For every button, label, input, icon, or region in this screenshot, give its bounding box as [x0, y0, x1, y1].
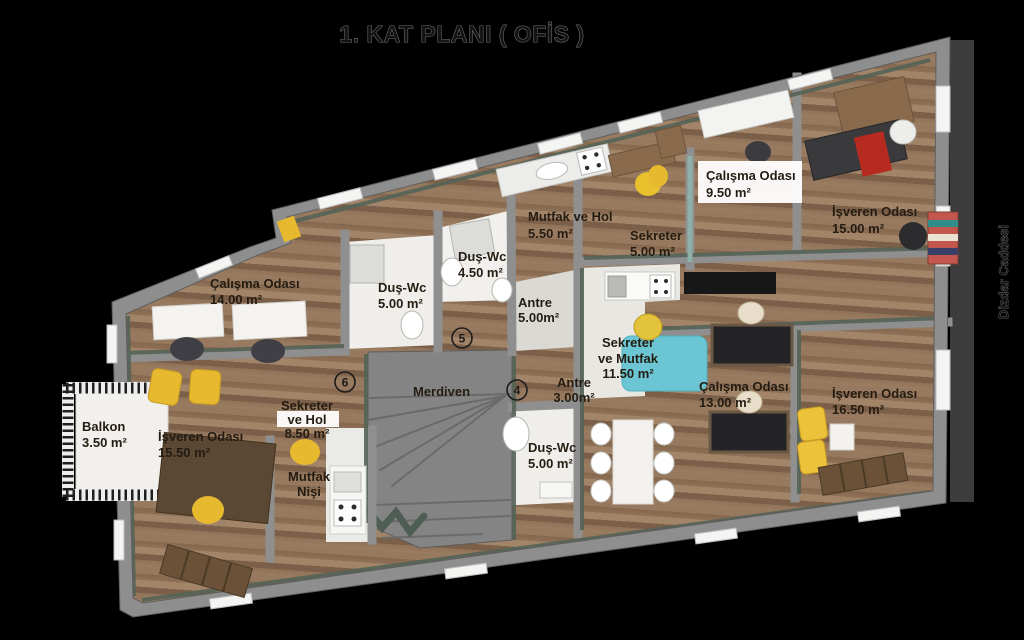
svg-text:Duş-Wc: Duş-Wc — [528, 440, 576, 455]
desk — [710, 412, 788, 452]
sink — [334, 472, 361, 492]
floor-plan-canvas: Çalışma Odası 9.50 m² İşveren Odası 15.0… — [0, 0, 1024, 640]
bath-counter — [540, 482, 572, 498]
marker-5: 5 — [452, 328, 472, 348]
room-label-balkon: Balkon 3.50 m² — [82, 419, 127, 450]
marker-6: 6 — [335, 372, 355, 392]
svg-text:Balkon: Balkon — [82, 419, 125, 434]
svg-text:ve Mutfak: ve Mutfak — [598, 351, 659, 366]
office-chair — [170, 337, 204, 361]
room-label-merdiven: Merdiven — [413, 384, 470, 399]
svg-text:3.50 m²: 3.50 m² — [82, 435, 127, 450]
svg-text:5.00 m²: 5.00 m² — [630, 244, 675, 259]
room-label-isveren-1650: İşveren Odası 16.50 m² — [832, 386, 917, 417]
svg-text:İşveren Odası: İşveren Odası — [832, 204, 917, 219]
office-chair — [251, 339, 285, 363]
svg-text:Sekreter: Sekreter — [630, 228, 682, 243]
toilet — [401, 311, 423, 339]
striped-armchair — [928, 212, 958, 264]
svg-text:4.50 m²: 4.50 m² — [458, 265, 503, 280]
chair — [591, 452, 611, 474]
chair — [654, 480, 674, 502]
yellow-chair — [648, 165, 668, 187]
svg-text:Çalışma Odası: Çalışma Odası — [706, 168, 796, 183]
yellow-chair — [797, 406, 828, 441]
svg-text:Sekreter: Sekreter — [602, 335, 654, 350]
svg-text:11.50 m²: 11.50 m² — [602, 366, 654, 381]
svg-text:8.50 m²: 8.50 m² — [285, 426, 330, 441]
svg-text:Mutfak: Mutfak — [288, 469, 331, 484]
yellow-chair — [147, 368, 182, 407]
room-label-mutfak-ve-hol: Mutfak ve Hol 5.50 m² — [528, 209, 613, 241]
room-label-sekreter-ve-mutfak: Sekreter ve Mutfak 11.50 m² — [598, 335, 659, 381]
office-chair — [745, 141, 771, 163]
room-label-sekreter-ve-hol: Sekreter ve Hol 8.50 m² — [281, 398, 333, 441]
svg-text:6: 6 — [342, 376, 349, 390]
sink — [608, 276, 626, 297]
yellow-chair — [189, 369, 221, 405]
svg-text:Antre: Antre — [518, 295, 552, 310]
sink — [503, 417, 529, 451]
street-label: Dizdar Caddesi — [996, 225, 1011, 319]
svg-text:14.00 m²: 14.00 m² — [210, 292, 263, 307]
svg-text:İşveren Odası: İşveren Odası — [158, 429, 243, 444]
sidewalk-strip — [950, 40, 974, 502]
cabinet — [655, 125, 687, 158]
svg-text:Sekreter: Sekreter — [281, 398, 333, 413]
svg-text:15.50 m²: 15.50 m² — [158, 445, 211, 460]
stove — [334, 500, 361, 526]
svg-text:15.00 m²: 15.00 m² — [832, 221, 885, 236]
room-label-duswc-450: Duş-Wc 4.50 m² — [458, 249, 506, 280]
svg-text:İşveren Odası: İşveren Odası — [832, 386, 917, 401]
svg-text:13.00 m²: 13.00 m² — [699, 395, 752, 410]
svg-text:Çalışma Odası: Çalışma Odası — [210, 276, 300, 291]
shower — [350, 245, 384, 283]
svg-text:5.00 m²: 5.00 m² — [528, 456, 573, 471]
room-label-mutfak-nisi: Mutfak Nişi — [288, 469, 331, 499]
stairwell — [368, 350, 512, 548]
room-label-duswc-500-bottom: Duş-Wc 5.00 m² — [528, 440, 576, 471]
chair — [654, 423, 674, 445]
stove — [650, 275, 671, 298]
svg-text:Nişi: Nişi — [297, 484, 321, 499]
chair — [738, 302, 764, 324]
svg-text:Merdiven: Merdiven — [413, 384, 470, 399]
floor-plan-drawing: Çalışma Odası 9.50 m² İşveren Odası 15.0… — [0, 0, 1024, 640]
round-table — [899, 222, 927, 250]
svg-text:Çalışma Odası: Çalışma Odası — [699, 379, 789, 394]
side-table — [830, 424, 854, 450]
svg-text:5: 5 — [459, 332, 466, 346]
desk — [152, 303, 224, 340]
svg-text:5.50 m²: 5.50 m² — [528, 226, 573, 241]
room-label-calisma-1300: Çalışma Odası 13.00 m² — [699, 379, 789, 410]
desk — [712, 325, 792, 365]
svg-text:3.00m²: 3.00m² — [553, 390, 595, 405]
room-label-sekreter-500: Sekreter 5.00 m² — [630, 228, 682, 259]
room-label-duswc-500-left: Duş-Wc 5.00 m² — [378, 280, 426, 311]
yellow-chair — [290, 439, 320, 465]
svg-text:9.50 m²: 9.50 m² — [706, 185, 751, 200]
svg-text:5.00 m²: 5.00 m² — [378, 296, 423, 311]
meeting-table — [613, 420, 653, 504]
svg-text:Antre: Antre — [557, 375, 591, 390]
slat-bench — [818, 453, 908, 496]
svg-text:ve Hol: ve Hol — [287, 412, 326, 427]
office-chair — [890, 120, 916, 144]
svg-text:Duş-Wc: Duş-Wc — [458, 249, 506, 264]
chair — [591, 423, 611, 445]
chair — [591, 480, 611, 502]
svg-text:Duş-Wc: Duş-Wc — [378, 280, 426, 295]
yellow-chair — [192, 496, 224, 524]
toilet — [492, 278, 512, 302]
svg-text:4: 4 — [514, 384, 521, 398]
svg-text:5.00m²: 5.00m² — [518, 310, 560, 325]
room-label-antre-300: Antre 3.00m² — [553, 375, 595, 405]
svg-text:Mutfak ve Hol: Mutfak ve Hol — [528, 209, 613, 224]
svg-text:16.50 m²: 16.50 m² — [832, 402, 885, 417]
dark-counter — [684, 272, 776, 294]
chair — [654, 452, 674, 474]
page-title: 1. KAT PLANI ( OFİS ) — [339, 21, 584, 47]
